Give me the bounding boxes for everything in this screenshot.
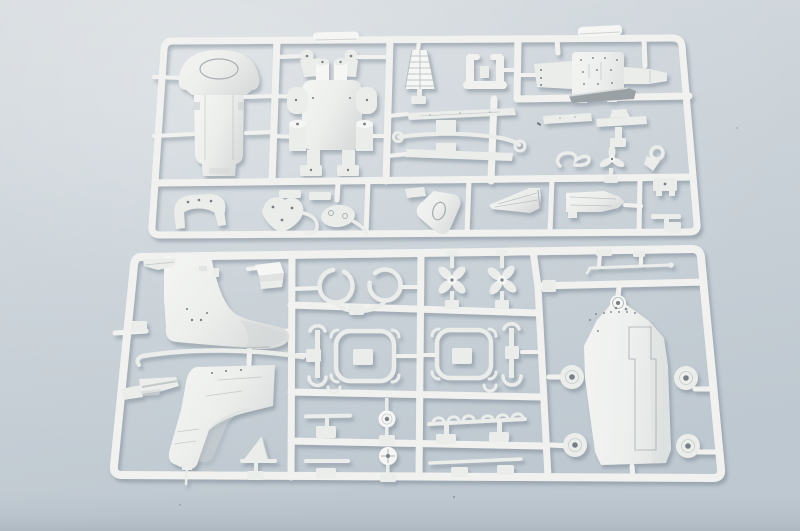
photo-canvas [0, 0, 800, 531]
sprue-photo [0, 0, 800, 531]
runner-tab-left [313, 32, 359, 42]
surface-bottom-band [0, 492, 800, 531]
